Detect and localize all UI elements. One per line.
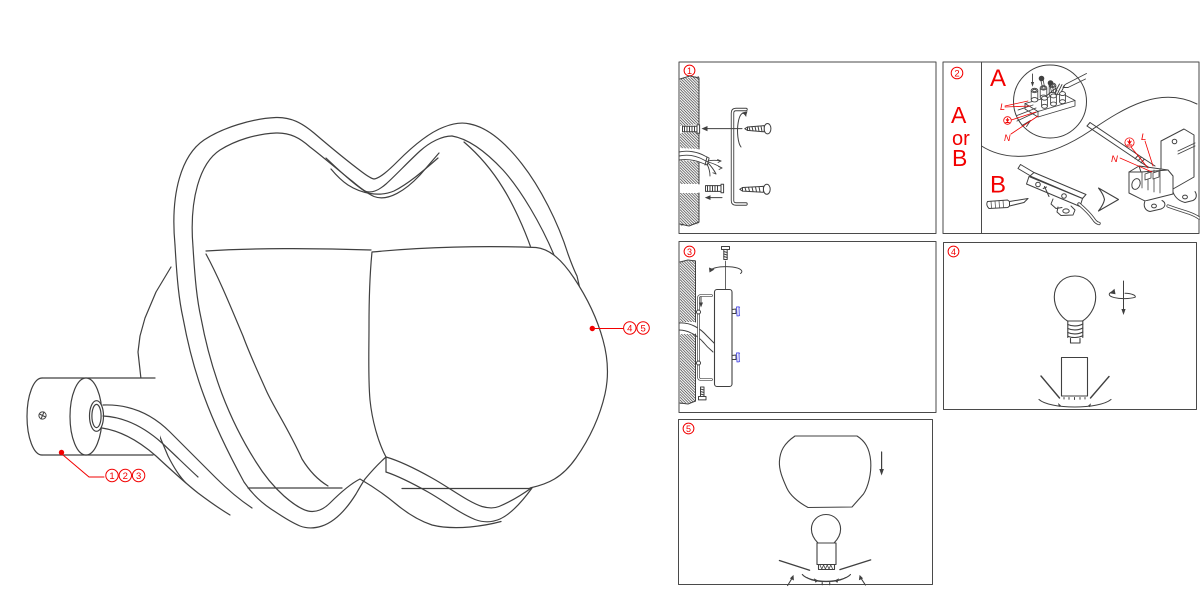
svg-text:N: N — [1111, 154, 1118, 165]
svg-text:1: 1 — [687, 66, 692, 76]
svg-text:B: B — [990, 172, 1006, 199]
svg-text:3: 3 — [687, 247, 692, 257]
svg-text:5: 5 — [640, 324, 645, 335]
svg-text:N: N — [1004, 133, 1011, 143]
svg-text:L: L — [1000, 102, 1005, 112]
svg-text:2: 2 — [954, 68, 959, 79]
svg-text:4: 4 — [627, 324, 632, 335]
svg-text:A: A — [951, 102, 967, 128]
svg-text:5: 5 — [686, 424, 691, 434]
svg-text:4: 4 — [951, 247, 956, 257]
svg-text:A: A — [990, 65, 1006, 92]
svg-text:B: B — [952, 145, 967, 171]
svg-text:3: 3 — [136, 471, 141, 482]
svg-text:2: 2 — [123, 471, 128, 482]
svg-text:1: 1 — [109, 471, 114, 482]
